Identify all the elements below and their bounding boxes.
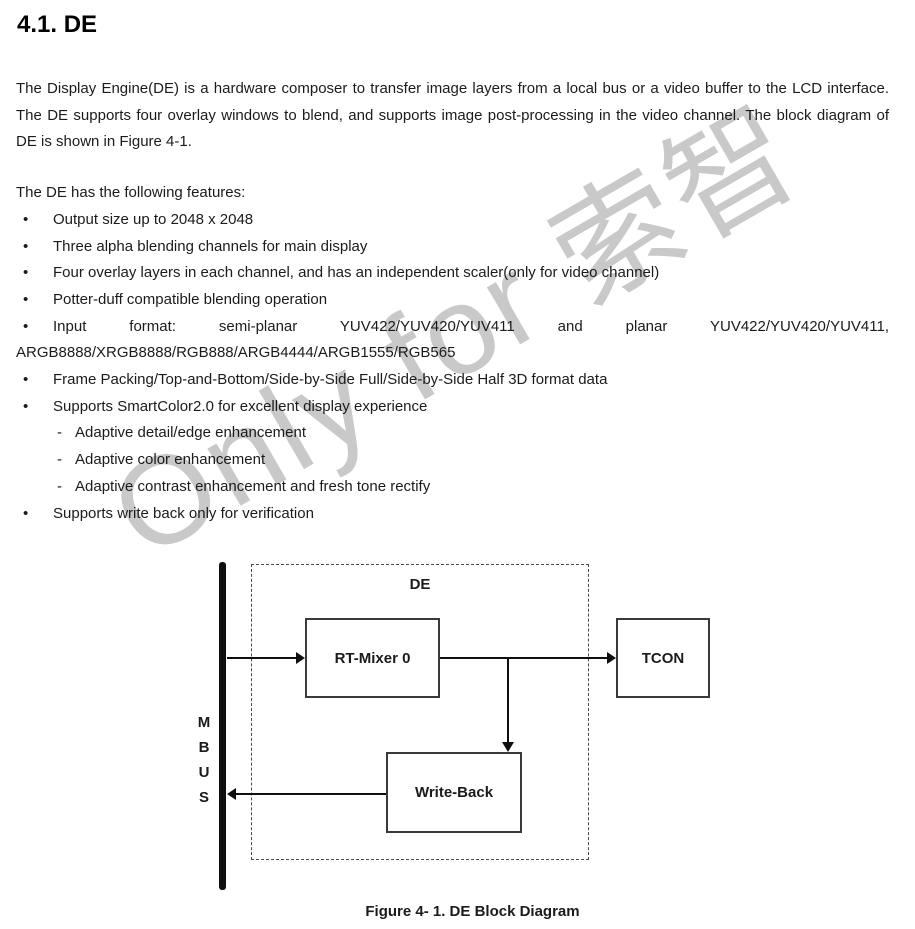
- mbus-label: M B U S: [194, 710, 214, 810]
- arrow-mbus-to-rtmixer: [227, 657, 297, 659]
- de-block-diagram: M B U S DE RT-Mixer 0 TCON Write-Back Fi…: [0, 0, 915, 929]
- arrow-branch-to-writeback: [507, 658, 509, 743]
- arrowhead-icon: [227, 788, 236, 800]
- figure-caption: Figure 4- 1. DE Block Diagram: [30, 903, 915, 920]
- block-rt-mixer-0: RT-Mixer 0: [305, 618, 440, 698]
- block-write-back: Write-Back: [386, 752, 522, 833]
- block-label: RT-Mixer 0: [335, 650, 411, 667]
- mbus-bus-line: [219, 562, 226, 890]
- document-page: Only for 索智 4.1. DE The Display Engine(D…: [0, 0, 915, 929]
- block-label: Write-Back: [415, 784, 493, 801]
- block-tcon: TCON: [616, 618, 710, 698]
- arrowhead-icon: [296, 652, 305, 664]
- arrow-rtmixer-to-tcon: [440, 657, 608, 659]
- arrowhead-icon: [502, 742, 514, 752]
- block-label: TCON: [642, 650, 685, 667]
- de-container-label: DE: [251, 575, 589, 595]
- arrowhead-icon: [607, 652, 616, 664]
- arrow-writeback-to-mbus: [235, 793, 386, 795]
